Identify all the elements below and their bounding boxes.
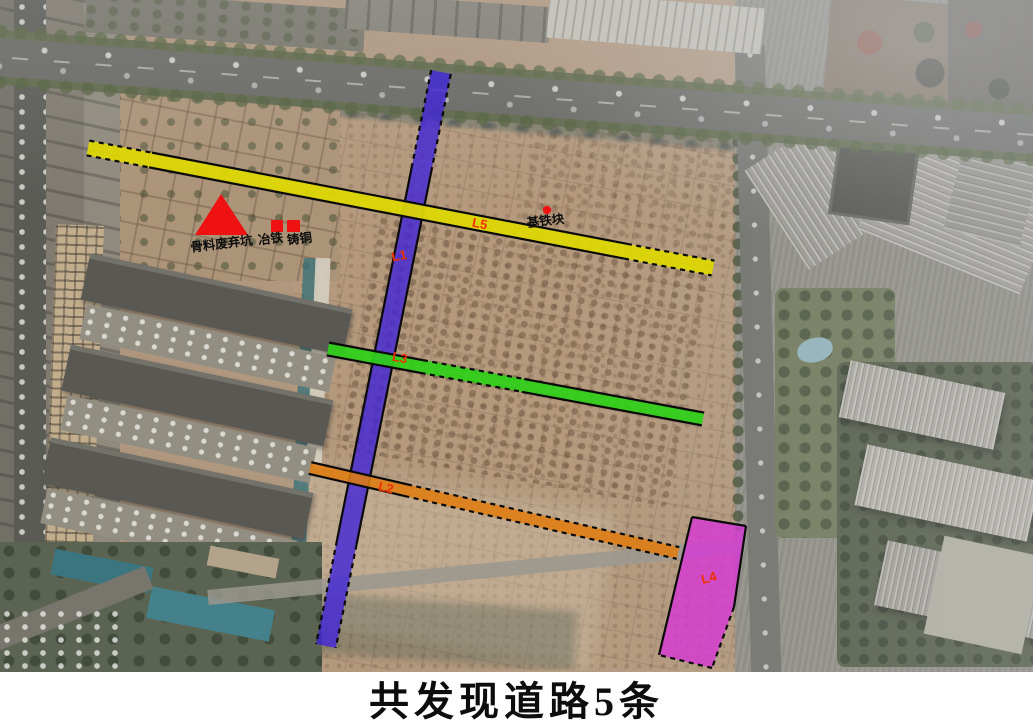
bronze-casting-label: 铸铜 bbox=[286, 230, 313, 248]
road-area-L4 bbox=[659, 517, 746, 668]
annotations-overlay: L1L5L3L2L4骨料废弃坑冶铁铸铜基铁块 bbox=[0, 0, 1033, 672]
figure-caption: 共发现道路5条 bbox=[0, 672, 1033, 723]
bronze-casting-square-marker bbox=[287, 220, 300, 232]
waste-pit-label: 骨料废弃坑 bbox=[190, 232, 254, 255]
aerial-photo: L1L5L3L2L4骨料废弃坑冶铁铸铜基铁块 bbox=[0, 0, 1033, 672]
iron-smelting-label: 冶铁 bbox=[257, 230, 284, 248]
road-border-L2 bbox=[407, 484, 679, 547]
figure: L1L5L3L2L4骨料废弃坑冶铁铸铜基铁块 共发现道路5条 bbox=[0, 0, 1033, 723]
road-label-L1: L1 bbox=[390, 247, 408, 264]
waste-pit-triangle-marker bbox=[195, 194, 248, 235]
road-label-L5: L5 bbox=[471, 215, 489, 233]
iron-block-label: 基铁块 bbox=[525, 211, 566, 231]
road-band-L2 bbox=[310, 468, 678, 553]
road-label-L3: L3 bbox=[391, 349, 409, 367]
